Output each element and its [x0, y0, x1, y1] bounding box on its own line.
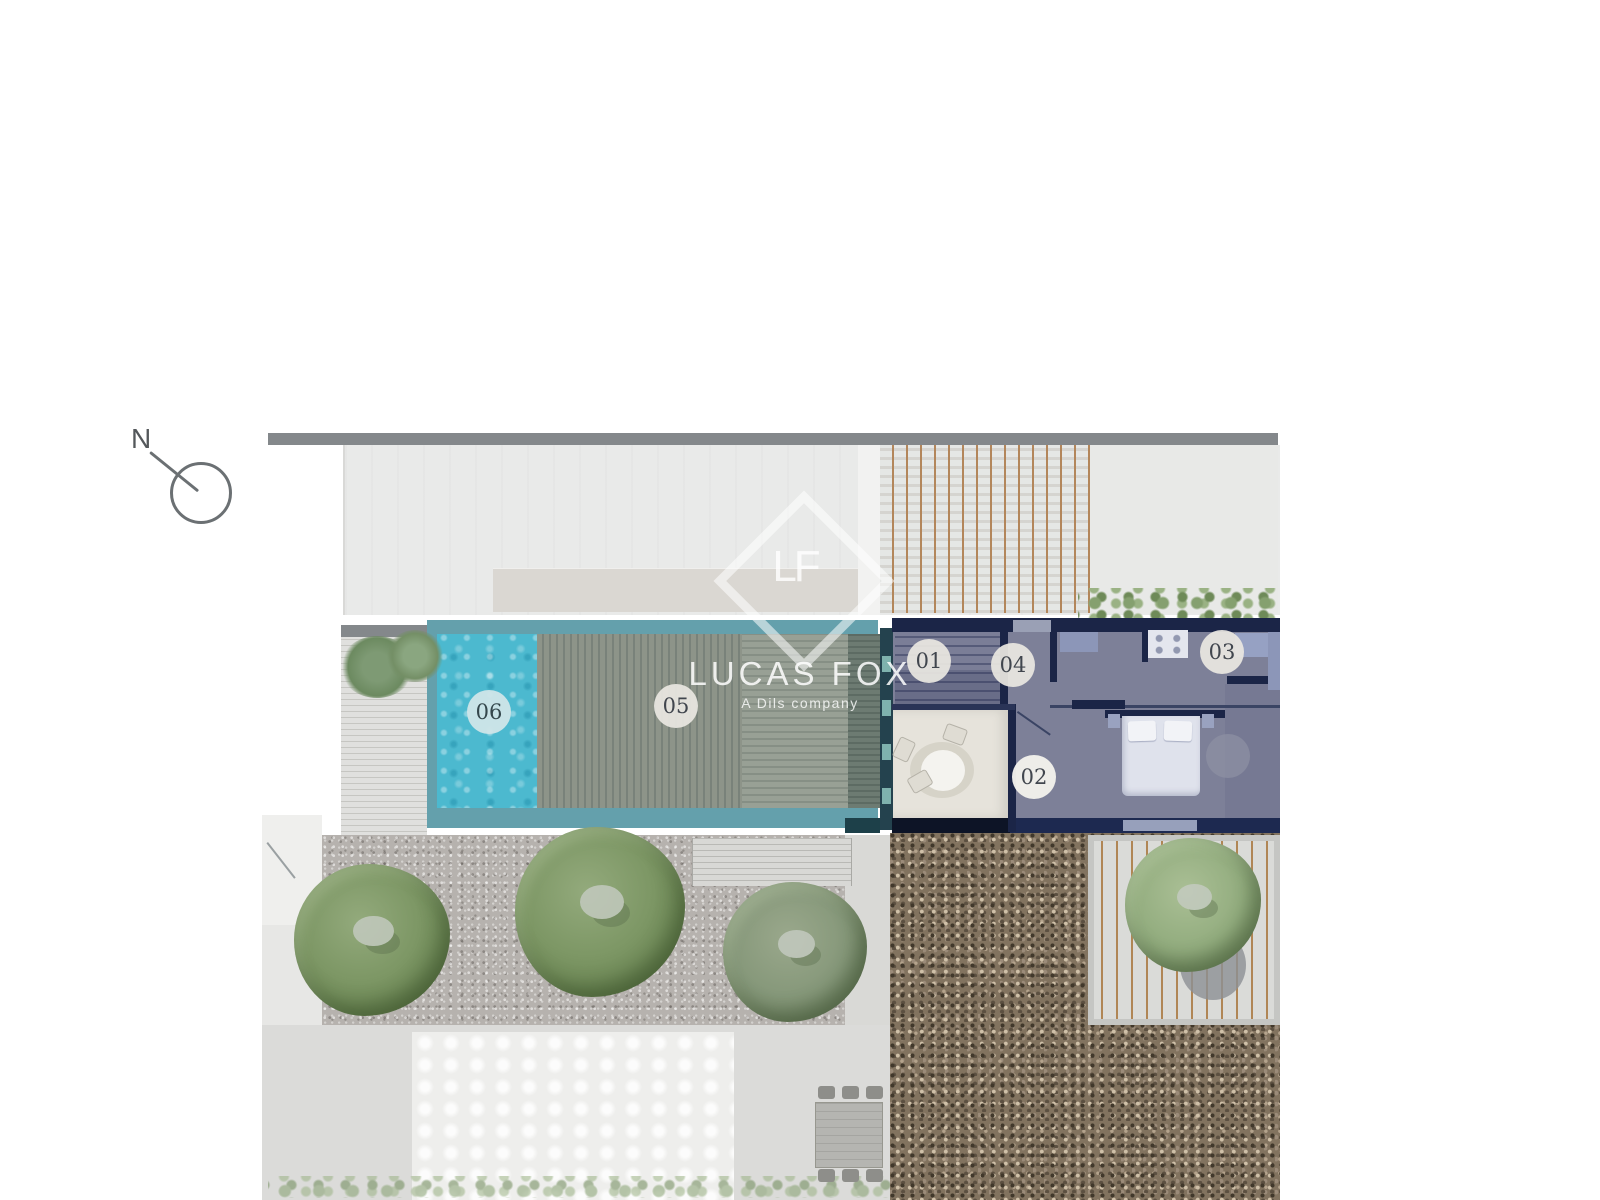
apartment-entry-door: [1013, 620, 1051, 632]
brand-name: LUCAS FOX: [688, 655, 912, 693]
palm-plant: [386, 630, 444, 682]
dining-chair: [866, 1086, 883, 1099]
outdoor-dining-table: [815, 1102, 883, 1168]
garden-steps: [692, 838, 852, 886]
unit-label-06: 06: [467, 690, 511, 734]
light-paved-patio: [412, 1032, 734, 1200]
interior-wall: [1050, 632, 1057, 682]
wardrobe-panel: [1268, 632, 1280, 690]
dining-chair: [842, 1086, 859, 1099]
interior-wall: [1072, 700, 1125, 709]
unit-label-01: 01: [907, 639, 951, 683]
grass-tufts: [268, 1176, 898, 1198]
dining-chair: [818, 1169, 835, 1182]
compass-icon: [170, 462, 232, 524]
hedge-row: [1078, 588, 1278, 618]
nightstand: [1108, 714, 1120, 728]
brand-tagline: A Dils company: [688, 695, 912, 711]
wall-notch: [882, 744, 891, 760]
unit-label-04: 04: [991, 643, 1035, 687]
pillow: [1128, 721, 1157, 742]
enclosure-corner-wall: [845, 818, 880, 833]
pillow: [1164, 721, 1193, 742]
pool-enclosure-frame-bottom: [427, 808, 878, 828]
apartment-wall-bottom-left: [892, 818, 1010, 833]
perimeter-wall-top: [268, 433, 1278, 445]
bedroom-window: [1123, 820, 1197, 831]
nightstand: [1202, 714, 1214, 728]
bedroom-rug: [1206, 734, 1250, 778]
dining-chair: [818, 1086, 835, 1099]
pergola-slats-top: [880, 445, 1090, 613]
site-plan-page: N: [0, 0, 1600, 1200]
unit-label-02: 02: [1012, 755, 1056, 799]
wall-notch: [882, 788, 891, 804]
dining-chair: [842, 1169, 859, 1182]
watermark-text: LUCAS FOX A Dils company: [688, 655, 912, 711]
compass-north-label: N: [131, 423, 151, 455]
dining-chair: [866, 1169, 883, 1182]
double-bed: [1122, 716, 1200, 796]
kitchen-hob: [1148, 630, 1188, 658]
lucas-fox-monogram: LF: [763, 542, 827, 592]
unit-label-03: 03: [1200, 630, 1244, 674]
closet: [1060, 632, 1098, 652]
